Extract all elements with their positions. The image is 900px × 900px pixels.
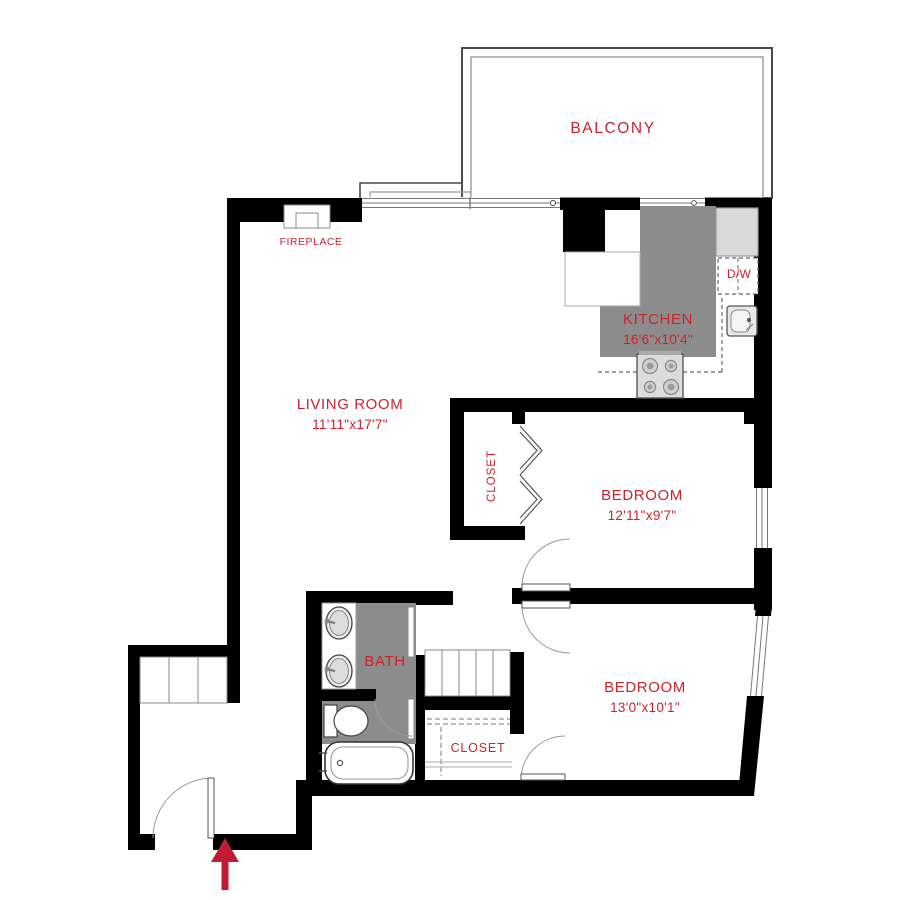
bath-door-leaf	[408, 607, 414, 657]
kitchen-dims: 16'6"x10'4"	[623, 330, 693, 350]
dishwasher-label: D/W	[727, 264, 751, 284]
bedroom1-window	[754, 488, 772, 548]
bath-label: BATH	[364, 652, 405, 672]
fireplace-label: FIREPLACE	[280, 232, 343, 252]
bedroom2-dims: 13'0"x10'1"	[604, 698, 686, 718]
living-room-label: LIVING ROOM 11'11"x17'7"	[297, 395, 404, 435]
refrigerator	[716, 208, 758, 256]
balcony-sliding-door	[362, 197, 560, 209]
bedroom2-window	[748, 616, 771, 696]
bedroom1-name: BEDROOM	[601, 486, 683, 506]
bathtub	[319, 742, 413, 784]
bedroom2-closet-door	[521, 736, 565, 780]
stove	[637, 351, 683, 398]
living-room-dims: 11'11"x17'7"	[297, 415, 404, 435]
bedroom1-dims: 12'11"x9'7"	[601, 506, 683, 526]
bedroom1-closet-bifold	[520, 426, 542, 524]
bedroom1-label: BEDROOM 12'11"x9'7"	[601, 486, 683, 526]
floor-plan: BALCONY FIREPLACE LIVING ROOM 11'11"x17'…	[0, 0, 900, 900]
balcony-label: BALCONY	[570, 119, 655, 139]
entry-shelves	[140, 657, 227, 703]
linen-shelves	[425, 650, 510, 696]
toilet	[324, 705, 368, 737]
bedroom1-door	[522, 539, 570, 591]
balcony-outline	[360, 48, 772, 199]
entry-door	[153, 778, 214, 838]
living-room-name: LIVING ROOM	[297, 395, 404, 415]
kitchen-sink	[727, 306, 757, 336]
bedroom2-label: BEDROOM 13'0"x10'1"	[604, 678, 686, 718]
balcony-step-outer	[360, 183, 462, 199]
closet-rod	[427, 719, 510, 724]
bedroom2-closet-label: CLOSET	[451, 738, 506, 758]
bath-name: BATH	[364, 652, 405, 672]
kitchen-label: KITCHEN 16'6"x10'4"	[623, 310, 693, 350]
kitchen-cabinet	[565, 252, 640, 306]
kitchen-name: KITCHEN	[623, 310, 693, 330]
bedroom2-name: BEDROOM	[604, 678, 686, 698]
fireplace	[284, 205, 330, 228]
floor-plan-drawing	[0, 0, 900, 900]
bedroom1-closet-label: CLOSET	[486, 450, 498, 502]
bedroom2-door	[522, 601, 570, 653]
